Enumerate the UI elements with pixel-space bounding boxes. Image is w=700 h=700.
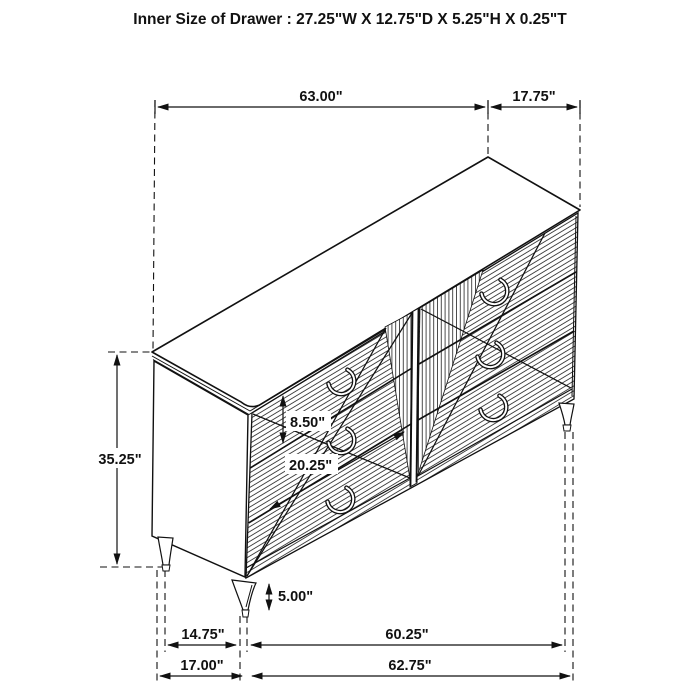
dim-top-depth-label: 17.75" (512, 89, 555, 105)
leg-right-foot (563, 425, 571, 431)
dim-overall-width-label: 62.75" (388, 658, 431, 674)
dim-drawer-width-label: 20.25" (289, 458, 332, 474)
diagram-canvas: 63.00" 17.75" 35.25" 8.50" 20.25" 5.00" (0, 0, 700, 700)
dim-leg-span-depth-label: 14.75" (181, 627, 224, 643)
dim-overall-height-label: 35.25" (98, 452, 141, 468)
dim-leg-height-label: 5.00" (278, 589, 313, 605)
leg-front-left-foot (242, 610, 249, 617)
page-title: Inner Size of Drawer : 27.25"W X 12.75"D… (133, 11, 567, 28)
dresser-dimension-diagram: 63.00" 17.75" 35.25" 8.50" 20.25" 5.00" (0, 0, 700, 700)
dim-leg-span-width-label: 60.25" (385, 627, 428, 643)
center-divider (410, 308, 419, 487)
dim-top-width-label: 63.00" (299, 89, 342, 105)
dim-drawer-height-label: 8.50" (290, 415, 325, 431)
dim-overall-depth-label: 17.00" (180, 658, 223, 674)
leg-back-left-foot (162, 565, 170, 571)
